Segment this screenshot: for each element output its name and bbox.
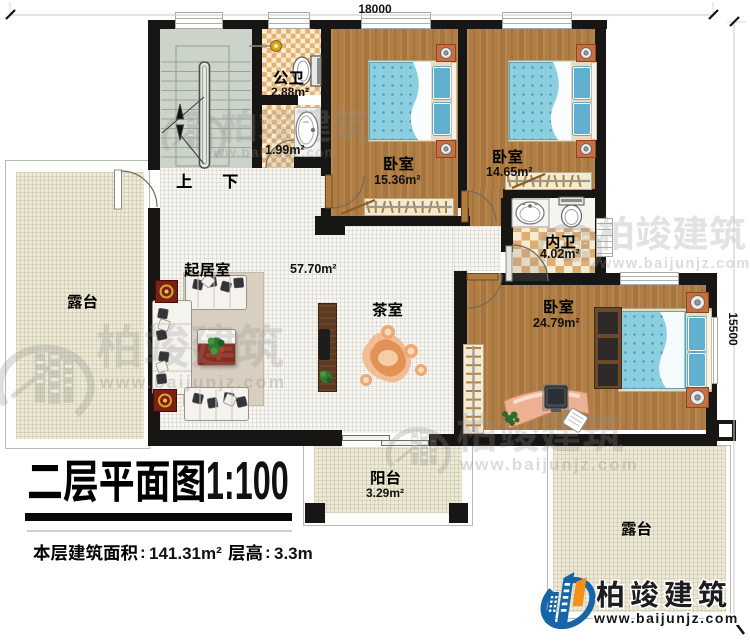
svg-text:1.99m²: 1.99m² [265,143,305,157]
svg-text:15500: 15500 [726,312,740,346]
svg-text:4.02m²: 4.02m² [540,247,580,261]
svg-text:2.88m²: 2.88m² [271,85,309,99]
svg-text:14.65m²: 14.65m² [486,165,533,179]
svg-text:3.3m: 3.3m [274,544,313,563]
svg-text:18000: 18000 [358,2,392,16]
svg-text:www.baijunjz.com: www.baijunjz.com [599,256,750,272]
svg-text:www.baijunjz.com: www.baijunjz.com [459,455,639,474]
svg-text:www.baijunjz.com: www.baijunjz.com [99,372,286,392]
svg-text:3.29m²: 3.29m² [366,486,404,500]
svg-text:57.70m²: 57.70m² [290,262,337,276]
svg-text::: : [140,543,146,562]
svg-text:15.36m²: 15.36m² [374,173,421,187]
svg-text:141.31m²: 141.31m² [149,544,222,563]
svg-text:24.79m²: 24.79m² [533,316,580,330]
svg-text:www.baijunjz.com: www.baijunjz.com [593,610,739,626]
svg-text::: : [265,543,271,562]
svg-text:1:100: 1:100 [206,450,289,511]
